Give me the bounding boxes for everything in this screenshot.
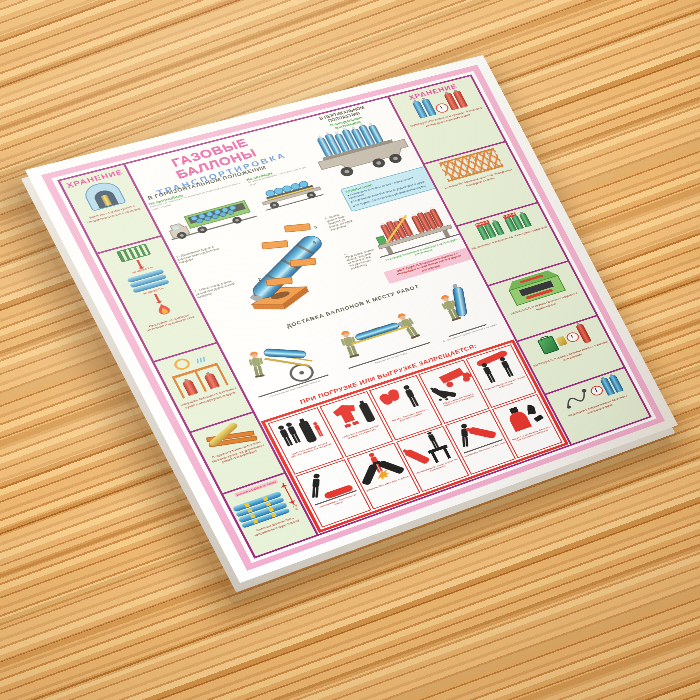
photo-vignette [0,0,700,700]
photo-scene: ХРАНЕНИЕ Баллоны с газами хранят в специ… [0,0,700,700]
